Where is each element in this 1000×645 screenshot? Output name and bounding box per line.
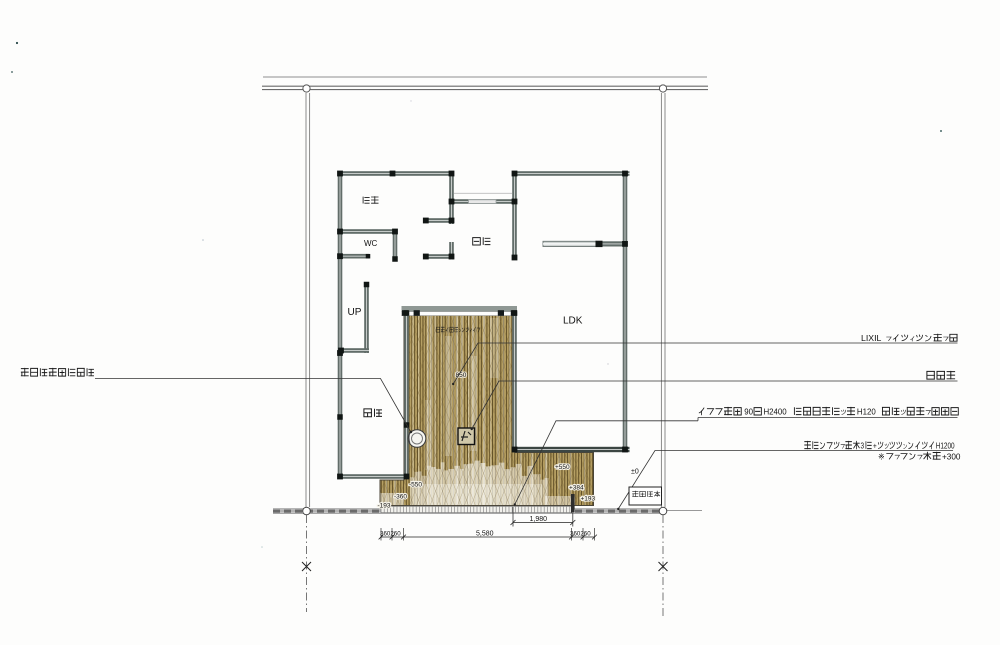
svg-text:±0: ±0 <box>631 469 639 476</box>
svg-text:-550: -550 <box>409 482 422 489</box>
svg-text:LDK: LDK <box>563 316 583 327</box>
svg-text:UP: UP <box>348 307 362 318</box>
svg-text:360260: 360260 <box>380 531 401 538</box>
svg-text:1,980: 1,980 <box>530 516 548 523</box>
svg-text:WC: WC <box>364 239 378 248</box>
svg-text:H120: H120 <box>857 407 876 416</box>
svg-text:H1200: H1200 <box>936 441 955 451</box>
svg-text:3: 3 <box>860 441 864 451</box>
svg-text:360260: 360260 <box>570 531 591 538</box>
svg-text:LIXIL: LIXIL <box>861 333 882 343</box>
svg-text:-360: -360 <box>394 494 407 501</box>
svg-text:-193: -193 <box>378 503 391 510</box>
svg-text:+300: +300 <box>942 453 961 462</box>
svg-text:90: 90 <box>744 407 753 416</box>
svg-text:+384: +384 <box>569 485 584 492</box>
svg-text:※: ※ <box>878 453 885 462</box>
svg-text:+193: +193 <box>581 496 596 503</box>
svg-text:5,580: 5,580 <box>476 531 494 538</box>
svg-text:H2400: H2400 <box>763 407 787 416</box>
svg-text:+: + <box>873 441 877 451</box>
svg-text:+550: +550 <box>555 464 570 471</box>
